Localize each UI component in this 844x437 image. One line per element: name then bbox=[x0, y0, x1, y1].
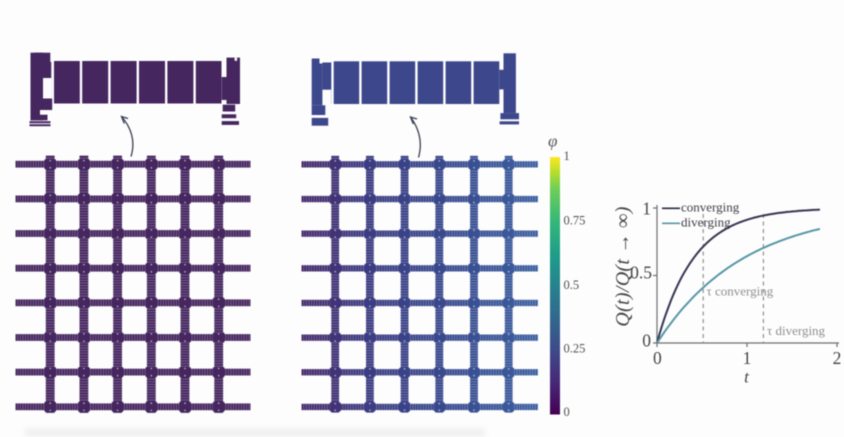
svg-text:τ diverging: τ diverging bbox=[767, 323, 826, 338]
svg-text:1: 1 bbox=[642, 199, 651, 219]
svg-text:Q(t)/Q(t → ∞): Q(t)/Q(t → ∞) bbox=[612, 206, 634, 326]
svg-text:0: 0 bbox=[653, 348, 662, 368]
svg-text:0: 0 bbox=[642, 331, 651, 351]
svg-text:2: 2 bbox=[833, 348, 842, 368]
svg-text:converging: converging bbox=[681, 200, 740, 215]
svg-text:diverging: diverging bbox=[681, 215, 731, 230]
svg-text:t: t bbox=[744, 368, 750, 387]
svg-text:0.75: 0.75 bbox=[564, 214, 586, 228]
svg-text:0: 0 bbox=[564, 405, 570, 419]
svg-text:1: 1 bbox=[743, 348, 752, 368]
svg-text:φ: φ bbox=[548, 132, 557, 151]
svg-text:1: 1 bbox=[564, 149, 570, 163]
svg-text:0.25: 0.25 bbox=[564, 342, 586, 356]
svg-text:0.5: 0.5 bbox=[564, 278, 580, 292]
svg-text:τ converging: τ converging bbox=[707, 284, 774, 299]
